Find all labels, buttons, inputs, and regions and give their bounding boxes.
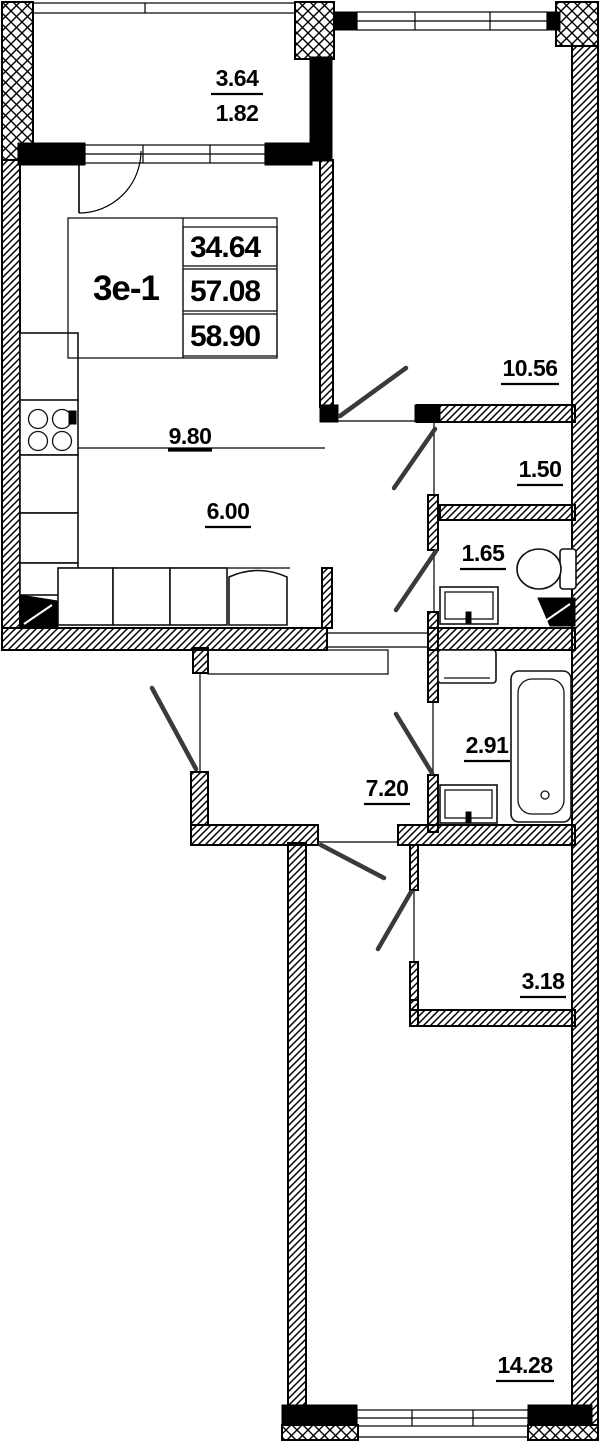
- kitchen-cabinet: [20, 333, 78, 402]
- wall-segment: [428, 628, 575, 650]
- wall-segment: [322, 568, 332, 628]
- kitchen-fixtures: [20, 333, 290, 628]
- unit-code-label: 3е-1: [93, 269, 160, 308]
- wc-fixtures: [440, 549, 576, 626]
- svg-text:3.18: 3.18: [522, 968, 565, 994]
- bathtub-icon: [511, 671, 571, 822]
- wall-segment: [410, 845, 418, 890]
- balcony-glazing: [33, 3, 295, 13]
- door-leaf-bathroom: [396, 714, 432, 773]
- floor-plan: 3е-1 34.64 57.08 58.90: [0, 0, 600, 1441]
- room-label-bedroom-lower: 14.28: [496, 1352, 554, 1381]
- title-block: 3е-1 34.64 57.08 58.90: [68, 218, 277, 358]
- toilet-icon: [517, 549, 576, 589]
- wall-segment: [2, 2, 33, 160]
- counter-row: [58, 568, 290, 625]
- area-living-label: 34.64: [190, 231, 261, 264]
- wall-segment: [428, 495, 438, 550]
- wall-segment: [288, 843, 306, 1425]
- wall-segment: [417, 405, 575, 422]
- room-label-bedroom-upper: 10.56: [501, 355, 559, 384]
- door-leaf-hall: [321, 845, 384, 878]
- kitchen-cabinet: [20, 513, 78, 563]
- sink-icon: [440, 785, 497, 823]
- svg-text:2.91: 2.91: [466, 732, 509, 758]
- wall-segment: [572, 46, 598, 1425]
- wall-segment: [265, 143, 312, 165]
- vent-shaft: [538, 598, 575, 626]
- door-leaf-wardrobe: [394, 429, 435, 488]
- window-bedroom-upper: [357, 12, 547, 30]
- room-label-hallway: 7.20: [364, 775, 410, 804]
- wall-segment: [320, 160, 333, 407]
- wall-segment: [528, 1405, 592, 1425]
- room-label-kitchen-zone: 9.80: [168, 423, 212, 450]
- wall-segment: [282, 1405, 357, 1425]
- wall-segment: [191, 772, 208, 825]
- svg-text:1.65: 1.65: [462, 540, 505, 566]
- wall-segment: [310, 57, 332, 161]
- area-with-balcony-label: 58.90: [190, 320, 260, 353]
- walls: [2, 46, 598, 1425]
- wall-segment: [2, 628, 327, 650]
- room-label-wardrobe: 1.50: [517, 456, 563, 485]
- wall-segment: [334, 12, 357, 30]
- svg-text:3.64: 3.64: [216, 65, 259, 91]
- wall-segment: [440, 505, 575, 520]
- door-leaf-bedroom-upper: [340, 368, 406, 416]
- wall-segment: [428, 775, 438, 832]
- svg-text:14.28: 14.28: [497, 1352, 553, 1378]
- wall-segment: [193, 648, 208, 673]
- wall-segment: [18, 143, 85, 165]
- door-jamb: [415, 405, 440, 422]
- svg-text:1.50: 1.50: [519, 456, 562, 482]
- kitchen-cabinet: [20, 455, 78, 513]
- window-kitchen: [85, 145, 265, 163]
- room-label-living-zone: 6.00: [205, 498, 251, 527]
- sink-unit: [229, 571, 287, 626]
- balcony-door: [79, 151, 141, 213]
- door-thresholds: [78, 421, 434, 962]
- svg-text:6.00: 6.00: [207, 498, 250, 524]
- room-label-storage: 3.18: [520, 968, 566, 997]
- wall-segment: [528, 1425, 598, 1440]
- svg-text:7.20: 7.20: [366, 775, 409, 801]
- washing-machine-icon: [438, 650, 496, 683]
- wardrobe-shelf: [208, 650, 388, 674]
- floor-plan-svg: 3е-1 34.64 57.08 58.90: [0, 0, 600, 1441]
- wall-segment: [295, 2, 334, 59]
- wall-segment: [398, 825, 575, 845]
- svg-text:10.56: 10.56: [502, 355, 557, 381]
- svg-text:1.82: 1.82: [216, 100, 259, 126]
- wall-segment: [428, 612, 438, 650]
- room-label-bathroom: 2.91: [464, 732, 510, 761]
- wall-segment: [282, 1425, 358, 1440]
- wall-segment: [2, 160, 20, 628]
- door-leaf-entrance: [152, 688, 196, 769]
- wall-segment: [547, 12, 560, 30]
- door-leaf-storage: [378, 892, 411, 949]
- room-label-balcony: 3.64 1.82: [211, 65, 263, 126]
- wall-segment: [410, 1010, 575, 1026]
- room-label-wc: 1.65: [460, 540, 506, 569]
- svg-text:9.80: 9.80: [169, 423, 212, 449]
- door-jamb: [320, 405, 338, 422]
- area-total-label: 57.08: [190, 275, 260, 308]
- window-bedroom-lower: [357, 1410, 528, 1437]
- wall-segment: [556, 2, 598, 46]
- stove-icon: [20, 400, 78, 455]
- sink-icon: [440, 587, 498, 624]
- door-leaf-wc: [396, 551, 436, 610]
- wall-segment: [428, 650, 438, 702]
